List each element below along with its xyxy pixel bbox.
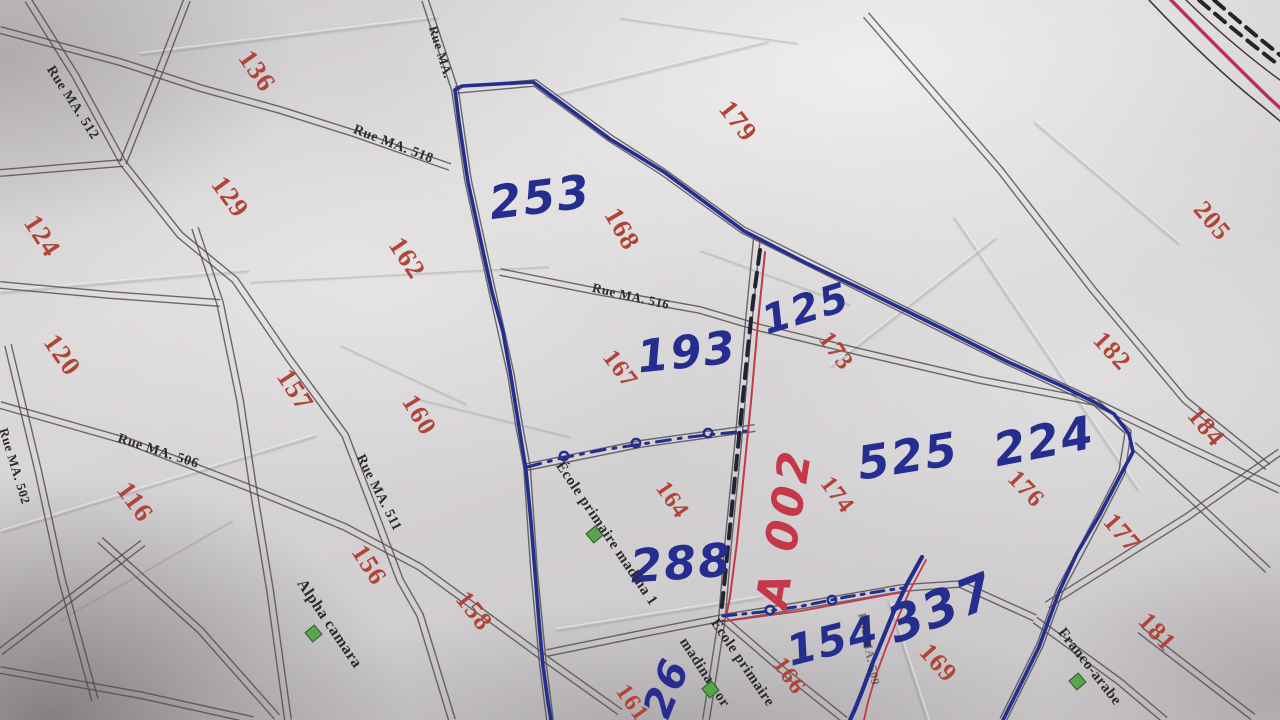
- parcel-number: 136: [233, 45, 280, 96]
- parcel-number: 181: [1133, 608, 1181, 656]
- parcel-number: 156: [347, 540, 392, 589]
- paper-map-photo: 1361291241621681792051201571601161561581…: [0, 0, 1280, 720]
- parcel-number: 173: [814, 327, 858, 374]
- place-name-label: École primaire madina 1: [552, 459, 659, 608]
- street-name-label: Rue MA. 506: [116, 432, 201, 471]
- parcel-number: 160: [397, 390, 441, 439]
- parcel-number: 179: [714, 96, 762, 147]
- handwritten-sector-label: A 002: [751, 445, 820, 611]
- parcel-number: 129: [206, 171, 253, 222]
- street-name-label: Rue MA. 512: [43, 64, 101, 142]
- handwritten-parcel-number: 125: [757, 277, 854, 341]
- place-name-label: Franco-arabe: [1054, 626, 1123, 709]
- school-marker-icon: [304, 624, 322, 642]
- parcel-number: 205: [1189, 197, 1236, 246]
- handwritten-parcel-number: 337: [881, 565, 1002, 651]
- parcel-number: 157: [272, 364, 318, 415]
- parcel-number: 167: [598, 345, 642, 392]
- parcel-number: 177: [1098, 509, 1145, 558]
- school-marker-icon: [1068, 672, 1086, 690]
- parcel-number: 184: [1183, 403, 1230, 452]
- handwritten-parcel-number: 253: [487, 168, 594, 226]
- map-labels: 1361291241621681792051201571601161561581…: [0, 0, 1280, 720]
- parcel-number: 182: [1088, 327, 1136, 375]
- parcel-number: 164: [651, 477, 693, 523]
- parcel-number: 162: [384, 232, 431, 283]
- parcel-number: 168: [599, 203, 644, 254]
- place-name-label: Alpha camara: [293, 577, 364, 672]
- street-name-label: Rue MA. 511: [353, 453, 403, 534]
- street-name-label: Rue MA. 518: [351, 123, 435, 166]
- parcel-number: 174: [816, 472, 859, 518]
- handwritten-parcel-number: 525: [854, 425, 962, 486]
- parcel-number: 158: [451, 586, 497, 635]
- street-name-label: Rue MA.: [427, 24, 455, 79]
- handwritten-parcel-number: 193: [635, 324, 739, 379]
- handwritten-parcel-number: 224: [990, 409, 1099, 474]
- parcel-number: 116: [112, 477, 159, 527]
- parcel-number: 120: [38, 329, 85, 380]
- street-name-label: Rue MA. 502: [0, 426, 33, 505]
- street-name-label: Rue MA. 516: [591, 281, 671, 311]
- parcel-number: 124: [19, 210, 65, 261]
